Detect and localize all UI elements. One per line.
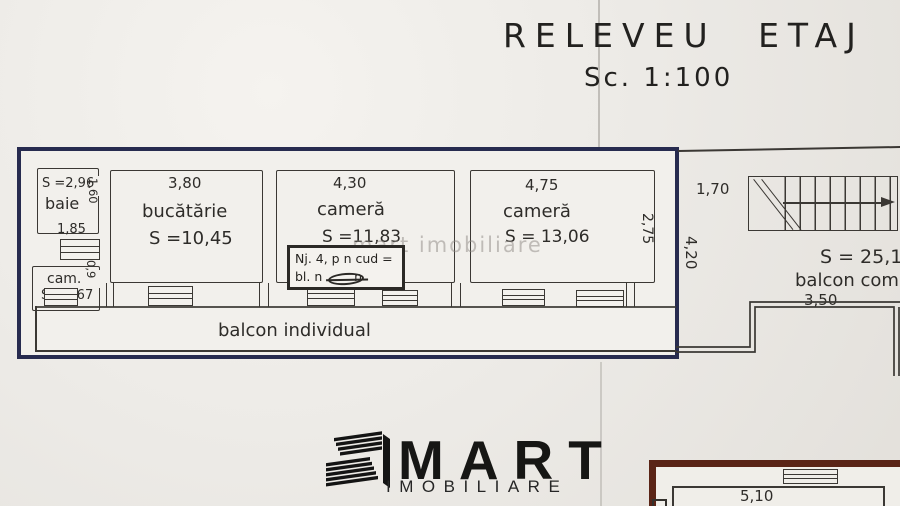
window-symbol — [576, 290, 624, 307]
handwritten-note-box: Nj. 4, p n cud = bl. n n — [287, 245, 405, 290]
stairs-direction-arrow-icon — [881, 197, 895, 207]
scanned-floor-plan-page: RELEVEU ETAJ Sc. 1:100 mart imobiliare S… — [0, 0, 900, 506]
bucatarie-area-label: S =10,45 — [149, 228, 233, 249]
lower-unit-width-dim: 5,10 — [740, 487, 773, 505]
window-symbol-left — [60, 239, 100, 260]
window-symbol — [382, 290, 418, 306]
cam-door-dim: 0,9 — [84, 260, 98, 278]
note-line1: Nj. 4, p n cud = — [295, 250, 397, 268]
lower-unit-window-symbol — [783, 469, 838, 484]
balcon-individual-label: balcon individual — [218, 320, 371, 341]
balcon-comun-railing — [676, 298, 900, 378]
bucatarie-name-label: bucătărie — [142, 201, 227, 222]
page-title: RELEVEU ETAJ — [503, 16, 865, 55]
wall-stub — [451, 283, 461, 307]
camera2-name-label: cameră — [503, 201, 571, 222]
wall-stub — [259, 283, 269, 307]
window-symbol — [44, 288, 78, 306]
lower-unit-corner-mark — [652, 499, 667, 506]
camera1-name-label: cameră — [317, 199, 385, 220]
window-symbol — [148, 286, 193, 306]
baie-door-dim: 1,60 — [86, 178, 100, 204]
camera2-depth-dim: 2,75 — [639, 213, 655, 244]
baie-name-label: baie — [45, 194, 79, 213]
staircase — [748, 176, 898, 231]
wall-stub — [626, 283, 635, 307]
balcon-comun-label: balcon comun — [795, 270, 900, 291]
scale-label: Sc. 1:100 — [584, 63, 733, 93]
bucatarie-width-dim: 3,80 — [168, 174, 201, 192]
logo — [320, 428, 394, 498]
lower-unit-inner-wall — [672, 486, 885, 506]
window-symbol — [502, 289, 545, 306]
cam-name-label: cam. — [47, 271, 81, 287]
camera1-width-dim: 4,30 — [333, 174, 366, 192]
common-entry-dim: 1,70 — [696, 180, 729, 198]
common-area-top-wall — [676, 142, 900, 156]
common-depth-dim: 4,20 — [682, 236, 700, 269]
camera2-width-dim: 4,75 — [525, 176, 558, 194]
stairs-direction-line — [783, 202, 883, 204]
wall-stub — [106, 283, 114, 307]
logo-tagline-text: IMOBILIARE — [386, 477, 568, 497]
common-area-label: S = 25,17 — [820, 246, 900, 268]
logo-building-icon — [320, 428, 394, 494]
cam-window-dim: 1,85 — [57, 222, 86, 237]
